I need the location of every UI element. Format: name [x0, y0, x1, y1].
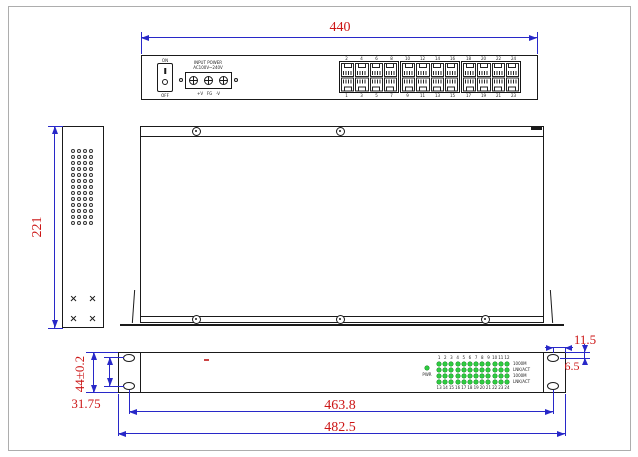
rj45-pins-icon [418, 79, 427, 83]
status-led [437, 380, 441, 384]
port-number: 24 [506, 56, 521, 61]
rj45-port [445, 63, 458, 77]
rj45-port [402, 78, 415, 92]
terminal-screw [204, 76, 213, 85]
dim-arrow [557, 431, 565, 437]
rj45-pins-icon [447, 79, 456, 83]
port-group-box [461, 61, 521, 93]
status-led [493, 374, 497, 378]
dim-arrow [545, 409, 553, 415]
dim-arrow [91, 352, 97, 360]
top-view-outline [140, 126, 544, 323]
dim-text-463-8: 463.8 [310, 398, 370, 414]
vent-hole [71, 179, 75, 183]
rj45-pins-icon [465, 71, 474, 75]
rj45-tab-icon [358, 86, 366, 91]
rj45-port [431, 63, 444, 77]
ext-line [553, 390, 554, 414]
rj45-pins-icon [508, 79, 517, 83]
port-number: 12 [415, 56, 430, 61]
rj45-pins-icon [465, 79, 474, 83]
switch-body [157, 63, 173, 92]
port-number: 21 [491, 93, 506, 98]
vent-hole [89, 179, 93, 183]
port-row [341, 63, 397, 77]
status-led [505, 362, 509, 366]
status-led [474, 362, 478, 366]
status-led [480, 380, 484, 384]
ext-line [566, 352, 590, 353]
rj45-tab-icon [508, 63, 516, 68]
power-input-line2: AC100V~240V [183, 65, 233, 70]
status-led [499, 368, 503, 372]
status-led [480, 368, 484, 372]
vent-hole [71, 197, 75, 201]
port-number: 23 [506, 93, 521, 98]
port-number: 11 [415, 93, 430, 98]
status-led [456, 362, 460, 366]
screw-hole [481, 315, 490, 324]
status-led [456, 380, 460, 384]
rj45-tab-icon [494, 63, 502, 68]
rj45-tab-icon [419, 86, 427, 91]
vent-hole [71, 161, 75, 165]
dim-arrow [52, 320, 58, 328]
led-numbers-top: 123456789101112 [436, 355, 510, 360]
terminal-screw [189, 76, 198, 85]
status-led [449, 368, 453, 372]
rj45-tab-icon [419, 63, 427, 68]
dim-text-482-5: 482.5 [310, 420, 370, 436]
status-led [486, 374, 490, 378]
led-indicator-block: PWR 123456789101112 13141516171819202122… [420, 354, 528, 391]
terminal-side-hole [234, 78, 238, 82]
port-row [463, 63, 519, 77]
rj45-port [492, 78, 505, 92]
dim-arrow [91, 385, 97, 393]
dim-arrow [107, 378, 113, 386]
port-row [463, 78, 519, 92]
vent-hole [71, 155, 75, 159]
rj45-tab-icon [447, 63, 455, 68]
port-number: 1 [339, 93, 354, 98]
rj45-pins-icon [343, 79, 352, 83]
rj45-pins-icon [372, 79, 381, 83]
status-led [437, 362, 441, 366]
port-numbers-top: 2468 [339, 56, 399, 61]
rj45-pins-icon [343, 71, 352, 75]
port-numbers-bottom: 17192123 [461, 93, 521, 98]
vent-hole [83, 167, 87, 171]
vent-hole [83, 203, 87, 207]
led-grid [436, 361, 510, 385]
vent-hole [77, 155, 81, 159]
vent-hole [83, 185, 87, 189]
vent-hole [89, 173, 93, 177]
rj45-port [370, 63, 383, 77]
port-group-box [400, 61, 460, 93]
port-number: 7 [384, 93, 399, 98]
port-number: 3 [354, 93, 369, 98]
vent-hole [83, 221, 87, 225]
status-led [486, 362, 490, 366]
status-led [474, 368, 478, 372]
status-led [505, 374, 509, 378]
port-number: 6 [369, 56, 384, 61]
port-row [402, 63, 458, 77]
rj45-tab-icon [466, 86, 474, 91]
vent-hole [89, 185, 93, 189]
vent-hole [77, 215, 81, 219]
front-edge-baseline [120, 324, 564, 326]
vent-hole [77, 167, 81, 171]
port-number: 13 [430, 93, 445, 98]
rack-hole [123, 354, 135, 362]
vent-hole [77, 161, 81, 165]
dim-arrow [141, 35, 149, 41]
pwr-label: PWR [420, 372, 434, 377]
status-led [499, 374, 503, 378]
status-led [443, 374, 447, 378]
port-number: 9 [400, 93, 415, 98]
status-led [468, 368, 472, 372]
port-row [402, 78, 458, 92]
rj45-port [431, 78, 444, 92]
vent-hole [89, 149, 93, 153]
vent-hole [77, 173, 81, 177]
port-number: 8 [384, 56, 399, 61]
vent-hole [89, 161, 93, 165]
rj45-pins-icon [479, 71, 488, 75]
rj45-pins-icon [494, 79, 503, 83]
port-number: 18 [461, 56, 476, 61]
rj45-tab-icon [433, 86, 441, 91]
vent-hole [89, 221, 93, 225]
rj45-pins-icon [418, 71, 427, 75]
vent-hole [71, 149, 75, 153]
rj45-port [402, 63, 415, 77]
rj45-port-group-1: 24681357 [339, 56, 399, 100]
rj45-port [463, 78, 476, 92]
dim-text-440: 440 [320, 20, 360, 36]
status-led [499, 380, 503, 384]
rj45-pins-icon [433, 71, 442, 75]
status-led [437, 368, 441, 372]
status-led [443, 362, 447, 366]
rj45-tab-icon [344, 63, 352, 68]
screw-hole [192, 127, 201, 136]
vent-hole-grid [71, 149, 94, 225]
status-led [462, 368, 466, 372]
vent-hole [83, 191, 87, 195]
rj45-port [506, 78, 519, 92]
dim-arrow [582, 345, 588, 352]
vent-hole [77, 209, 81, 213]
rj45-port [355, 63, 368, 77]
rj45-tab-icon [447, 86, 455, 91]
dim-arrow [546, 345, 553, 351]
led-row-labels: 1000MLNK/ACT1000MLNK/ACT [513, 361, 530, 385]
rj45-tab-icon [344, 86, 352, 91]
rj45-port [506, 63, 519, 77]
switch-o-mark [162, 79, 168, 85]
rj45-tab-icon [508, 86, 516, 91]
status-led [468, 374, 472, 378]
rack-hole [547, 382, 559, 390]
port-numbers-bottom: 1357 [339, 93, 399, 98]
rj45-pins-icon [404, 71, 413, 75]
status-led [468, 362, 472, 366]
rj45-tab-icon [433, 63, 441, 68]
led-numbers-bottom: 131415161718192021222324 [436, 385, 510, 390]
rj45-pins-icon [447, 71, 456, 75]
vent-hole [77, 191, 81, 195]
dim-arrow [52, 126, 58, 134]
terminal-screw [219, 76, 228, 85]
vent-hole [71, 215, 75, 219]
dim-arrow [529, 35, 537, 41]
status-led [499, 362, 503, 366]
screw-hole [336, 315, 345, 324]
vent-hole [89, 191, 93, 195]
rj45-tab-icon [480, 86, 488, 91]
rj45-pins-icon [386, 71, 395, 75]
port-number: 17 [461, 93, 476, 98]
engineering-drawing-switch: 440 ON OFF INPUT POWER AC100V~240V +V FG… [0, 0, 638, 457]
ext-line [537, 32, 538, 54]
port-number: 22 [491, 56, 506, 61]
rj45-port [384, 78, 397, 92]
corner-notch [531, 127, 542, 130]
rj45-port [355, 78, 368, 92]
vent-hole [83, 149, 87, 153]
vent-hole [89, 167, 93, 171]
vent-hole [77, 149, 81, 153]
rj45-port [445, 78, 458, 92]
status-led [462, 374, 466, 378]
rj45-port-group-3: 1820222417192123 [461, 56, 521, 100]
rj45-tab-icon [480, 63, 488, 68]
status-led [493, 368, 497, 372]
port-number: 20 [476, 56, 491, 61]
status-led [493, 362, 497, 366]
dim-text-31-75: 31.75 [62, 396, 110, 412]
terminal-labels: +V FG -V [185, 91, 232, 96]
vent-hole [83, 161, 87, 165]
port-row [341, 78, 397, 92]
status-led [486, 380, 490, 384]
vent-hole [77, 221, 81, 225]
rj45-tab-icon [358, 63, 366, 68]
top-strip-line [141, 136, 543, 137]
rj45-pins-icon [386, 79, 395, 83]
dim-text-44: 44±0.2 [72, 344, 88, 404]
status-led [505, 380, 509, 384]
ext-line [104, 386, 124, 387]
rj45-tab-icon [372, 86, 380, 91]
countersunk-hole [89, 315, 96, 322]
port-group-box [339, 61, 399, 93]
led-row-label: LNK/ACT [513, 379, 530, 385]
rj45-tab-icon [466, 63, 474, 68]
ext-line [565, 394, 566, 436]
switch-off-label: OFF [157, 93, 173, 98]
rj45-pins-icon [479, 79, 488, 83]
countersunk-hole [89, 295, 96, 302]
rj45-port [463, 63, 476, 77]
countersunk-hole [70, 315, 77, 322]
port-number: 5 [369, 93, 384, 98]
status-led [493, 380, 497, 384]
port-numbers-top: 18202224 [461, 56, 521, 61]
status-led [480, 374, 484, 378]
terminal-side-hole [179, 78, 183, 82]
led-number: 24 [504, 385, 510, 390]
ext-line [48, 328, 63, 329]
rack-hole [123, 382, 135, 390]
vent-hole [71, 173, 75, 177]
port-number: 14 [430, 56, 445, 61]
rj45-pins-icon [372, 71, 381, 75]
vent-hole [71, 191, 75, 195]
vent-hole [89, 197, 93, 201]
status-led [468, 380, 472, 384]
dim-text-221: 221 [30, 207, 46, 247]
rj45-port [477, 63, 490, 77]
vent-hole [83, 215, 87, 219]
rj45-tab-icon [386, 86, 394, 91]
vent-hole [83, 179, 87, 183]
rj45-pins-icon [508, 71, 517, 75]
dim-line [54, 126, 55, 328]
status-led [437, 374, 441, 378]
vent-hole [71, 209, 75, 213]
vent-hole [71, 185, 75, 189]
rj45-tab-icon [494, 86, 502, 91]
dim-text-6-5: 6.5 [561, 359, 583, 374]
status-led [449, 362, 453, 366]
rj45-tab-icon [386, 63, 394, 68]
port-number: 19 [476, 93, 491, 98]
vent-hole [77, 185, 81, 189]
rj45-port [341, 63, 354, 77]
power-led [425, 366, 429, 370]
port-number: 15 [445, 93, 460, 98]
status-led [462, 380, 466, 384]
dim-arrow [118, 431, 126, 437]
vent-hole [71, 203, 75, 207]
rj45-tab-icon [405, 86, 413, 91]
vent-hole [89, 155, 93, 159]
screw-hole [336, 127, 345, 136]
rj45-port [384, 63, 397, 77]
rj45-pins-icon [357, 79, 366, 83]
status-led [449, 380, 453, 384]
vent-hole [83, 173, 87, 177]
port-number: 16 [445, 56, 460, 61]
vent-hole [83, 209, 87, 213]
vent-hole [83, 155, 87, 159]
dim-line [141, 37, 538, 38]
status-led [456, 368, 460, 372]
status-led [449, 374, 453, 378]
rj45-pins-icon [433, 79, 442, 83]
rack-hole [547, 354, 559, 362]
dim-arrow [107, 357, 113, 365]
rj45-port [370, 78, 383, 92]
rj45-pins-icon [357, 71, 366, 75]
status-led [474, 380, 478, 384]
led-number: 12 [504, 355, 510, 360]
countersunk-hole [70, 295, 77, 302]
panel-red-mark [204, 359, 209, 361]
vent-hole [89, 215, 93, 219]
port-numbers-top: 10121416 [400, 56, 460, 61]
rj45-tab-icon [372, 63, 380, 68]
status-led [486, 368, 490, 372]
vent-hole [77, 197, 81, 201]
vent-hole [71, 221, 75, 225]
rj45-pins-icon [404, 79, 413, 83]
port-number: 4 [354, 56, 369, 61]
vent-hole [77, 203, 81, 207]
status-led [505, 368, 509, 372]
switch-i-mark [164, 68, 166, 74]
dim-arrow [129, 409, 137, 415]
rj45-port [416, 78, 429, 92]
status-led [480, 362, 484, 366]
rj45-port [416, 63, 429, 77]
status-led [474, 374, 478, 378]
vent-hole [77, 179, 81, 183]
rj45-pins-icon [494, 71, 503, 75]
status-led [443, 368, 447, 372]
vent-hole [83, 197, 87, 201]
screw-hole [192, 315, 201, 324]
port-number: 10 [400, 56, 415, 61]
rj45-port [341, 78, 354, 92]
vent-hole [89, 203, 93, 207]
rj45-tab-icon [405, 63, 413, 68]
vent-hole [71, 167, 75, 171]
status-led [443, 380, 447, 384]
port-number: 2 [339, 56, 354, 61]
port-numbers-bottom: 9111315 [400, 93, 460, 98]
rj45-port [492, 63, 505, 77]
status-led [462, 362, 466, 366]
rj45-port [477, 78, 490, 92]
status-led [456, 374, 460, 378]
vent-hole [89, 209, 93, 213]
rj45-port-group-2: 101214169111315 [400, 56, 460, 100]
